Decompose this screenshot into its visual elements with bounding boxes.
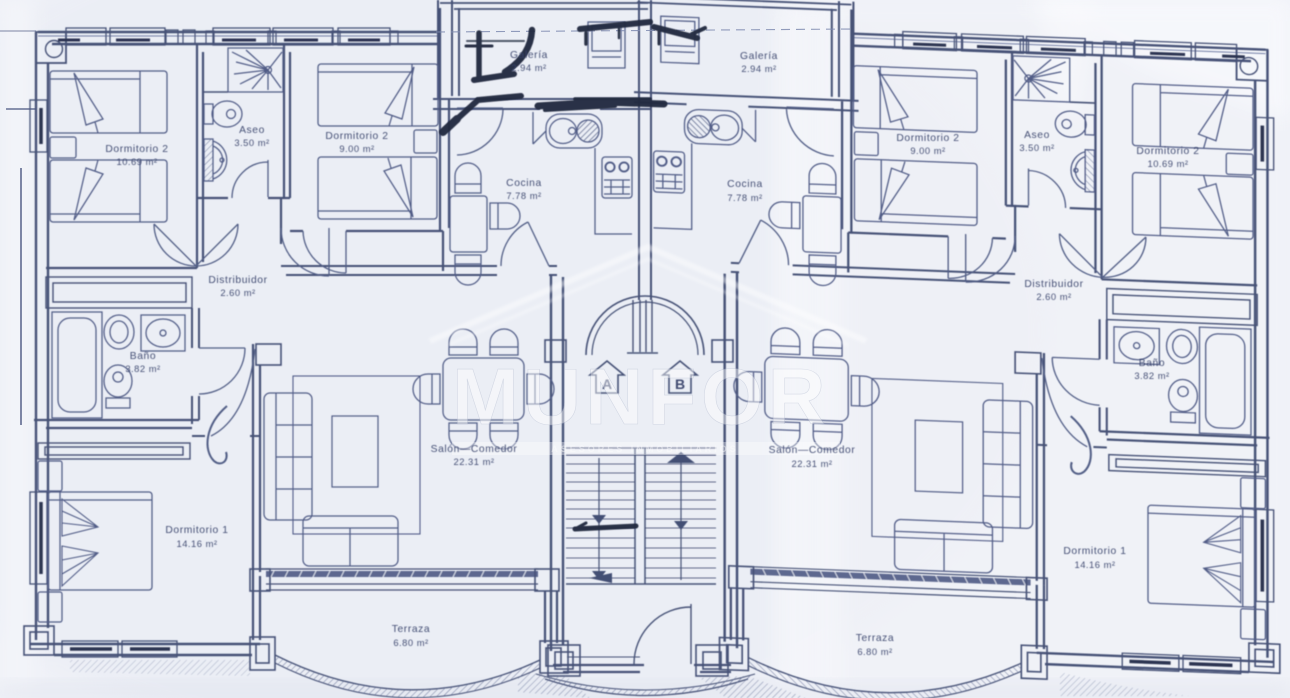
- svg-text:Dormitorio 2: Dormitorio 2: [1136, 146, 1199, 157]
- svg-text:Cocina: Cocina: [727, 179, 763, 190]
- svg-text:Dormitorio 2: Dormitorio 2: [896, 133, 959, 144]
- svg-text:Baño: Baño: [1139, 358, 1165, 369]
- svg-text:Aseo: Aseo: [239, 125, 265, 136]
- svg-text:Salón—Comedor: Salón—Comedor: [431, 444, 518, 455]
- svg-text:2.60 m²: 2.60 m²: [1036, 291, 1071, 302]
- svg-text:7.78 m²: 7.78 m²: [506, 190, 541, 201]
- svg-text:Cocina: Cocina: [506, 178, 542, 189]
- svg-text:3.82 m²: 3.82 m²: [125, 363, 160, 374]
- svg-text:10.69 m²: 10.69 m²: [117, 156, 158, 167]
- svg-text:Galería: Galería: [740, 51, 778, 62]
- svg-text:Dormitorio 2: Dormitorio 2: [105, 144, 168, 155]
- svg-text:Distribuidor: Distribuidor: [1024, 279, 1083, 290]
- svg-text:3.50 m²: 3.50 m²: [1019, 142, 1054, 153]
- svg-text:14.16 m²: 14.16 m²: [1075, 559, 1116, 570]
- svg-text:3.82 m²: 3.82 m²: [1134, 370, 1169, 381]
- svg-text:10.69 m²: 10.69 m²: [1148, 158, 1189, 169]
- svg-text:MUNFOR: MUNFOR: [452, 352, 830, 441]
- svg-text:2.94 m²: 2.94 m²: [511, 62, 546, 73]
- svg-text:14.16 m²: 14.16 m²: [177, 538, 218, 549]
- svg-text:6.80 m²: 6.80 m²: [393, 637, 428, 648]
- svg-text:Terraza: Terraza: [392, 624, 431, 635]
- svg-text:Dormitorio 1: Dormitorio 1: [1063, 546, 1126, 557]
- svg-text:Distribuidor: Distribuidor: [208, 275, 267, 286]
- svg-text:2.94 m²: 2.94 m²: [741, 63, 776, 74]
- svg-text:7.78 m²: 7.78 m²: [727, 192, 762, 203]
- svg-text:9.00 m²: 9.00 m²: [910, 145, 945, 156]
- svg-text:2.60 m²: 2.60 m²: [220, 287, 255, 298]
- svg-text:Salón—Comedor: Salón—Comedor: [769, 445, 856, 456]
- svg-text:Dormitorio 2: Dormitorio 2: [325, 131, 388, 142]
- svg-text:ASESORES INMOBILIARIOS: ASESORES INMOBILIARIOS: [551, 444, 739, 454]
- svg-text:Dormitorio 1: Dormitorio 1: [165, 525, 228, 536]
- svg-text:22.31 m²: 22.31 m²: [454, 456, 495, 467]
- svg-text:Galería: Galería: [510, 50, 548, 61]
- svg-text:Terraza: Terraza: [856, 633, 895, 644]
- svg-text:6.80 m²: 6.80 m²: [857, 646, 892, 657]
- svg-text:3.50 m²: 3.50 m²: [234, 137, 269, 148]
- svg-text:22.31 m²: 22.31 m²: [792, 458, 833, 469]
- svg-text:9.00 m²: 9.00 m²: [339, 143, 374, 154]
- svg-text:Baño: Baño: [130, 351, 156, 362]
- svg-text:Aseo: Aseo: [1024, 130, 1050, 141]
